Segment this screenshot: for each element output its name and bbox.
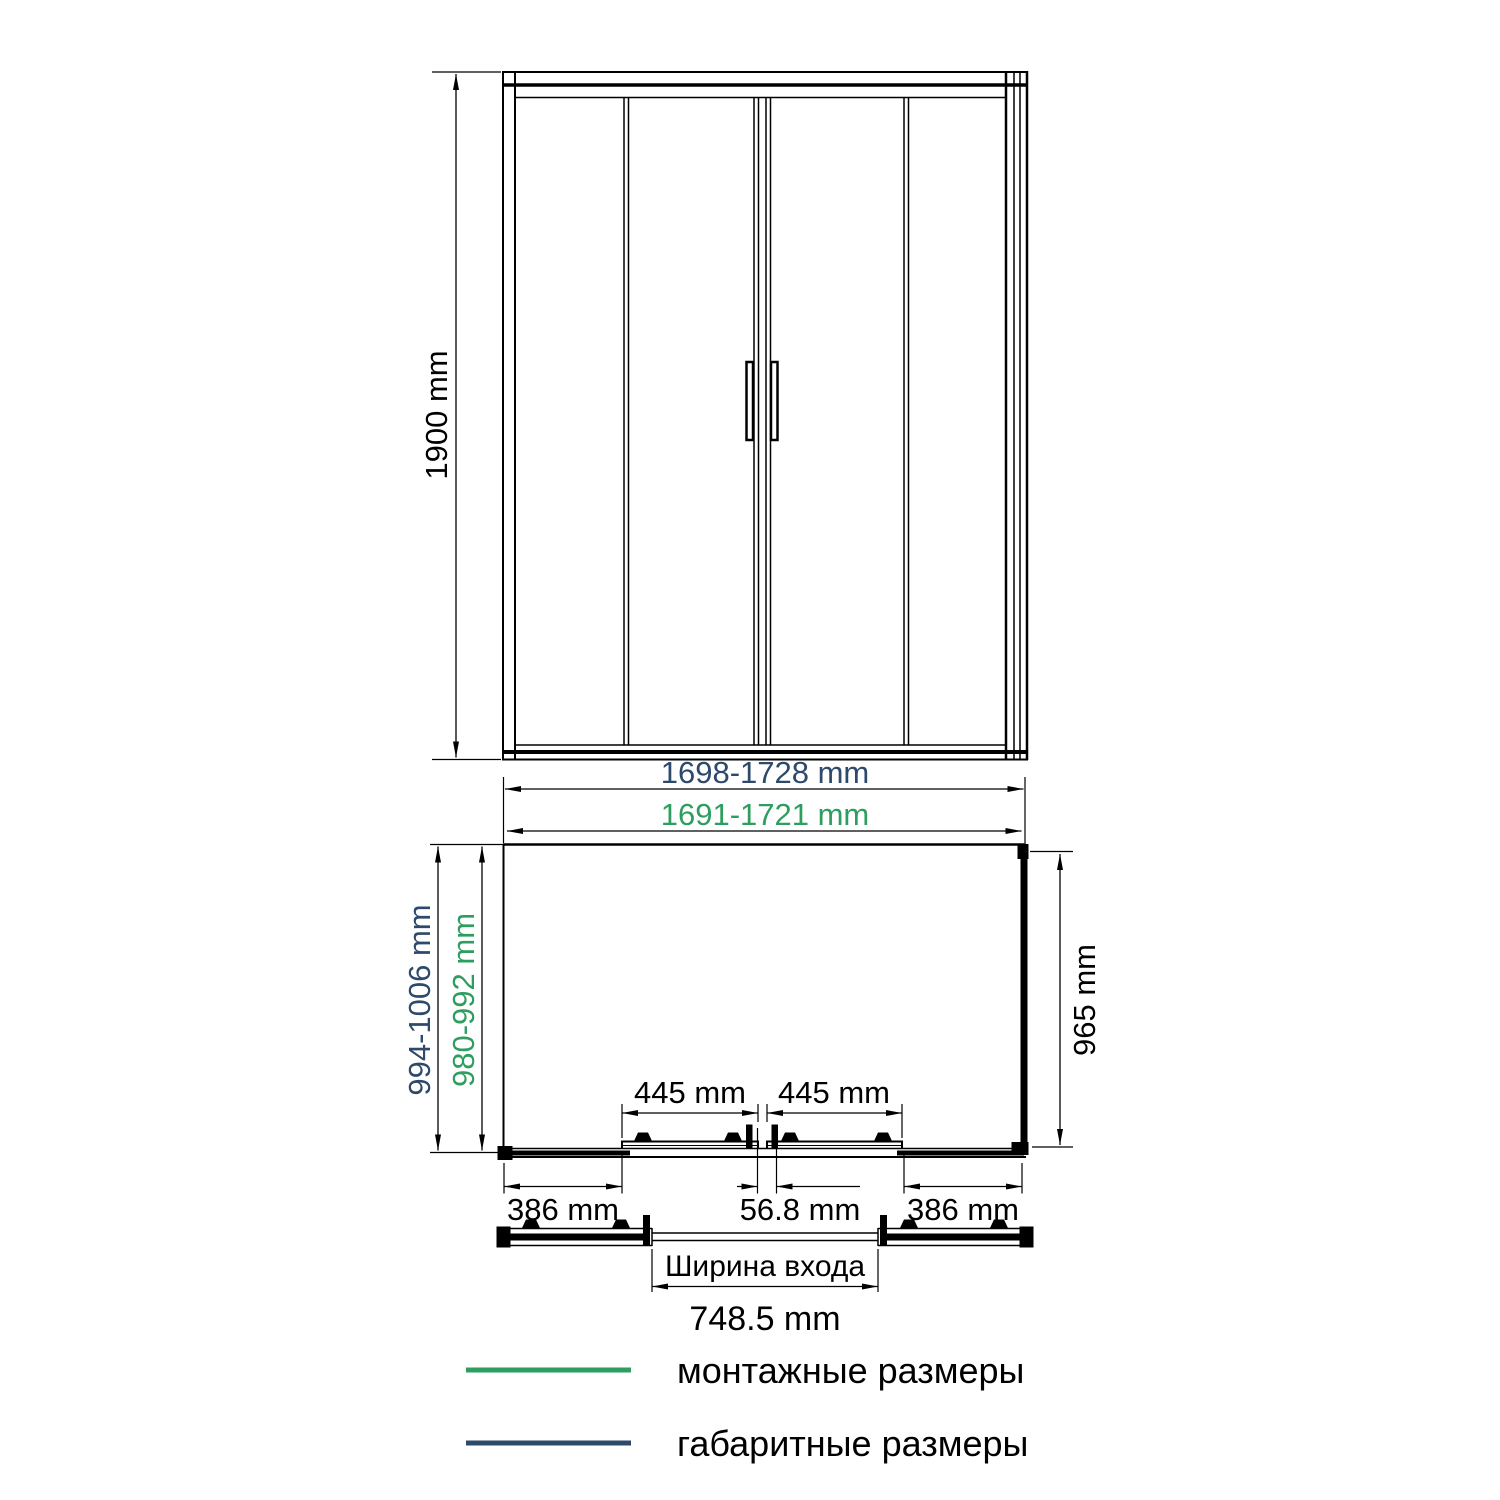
plan-sliding-door-right xyxy=(767,1125,902,1150)
entrance-width-label: 748.5 mm xyxy=(689,1300,840,1338)
roller xyxy=(634,1133,652,1142)
shower-enclosure-drawing: 1900 mm xyxy=(0,0,1500,1500)
legend-overall-label: габаритные размеры xyxy=(677,1423,1028,1464)
front-right-wall-profile xyxy=(1006,71,1027,760)
segment-left-label: 386 mm xyxy=(507,1192,619,1227)
open-handle-left xyxy=(643,1215,650,1246)
front-top-rail xyxy=(502,72,1028,98)
legend xyxy=(466,1370,631,1443)
entrance-caption: Ширина входа xyxy=(665,1250,865,1283)
overall-depth-label: 994-1006 mm xyxy=(402,904,437,1095)
door-right-label: 445 mm xyxy=(778,1075,890,1110)
plan-outline xyxy=(430,844,1029,1158)
roller xyxy=(724,1133,742,1142)
front-panel-dividers xyxy=(624,97,909,745)
mounting-width-label: 1691-1721 mm xyxy=(661,797,870,832)
roller xyxy=(874,1133,892,1142)
technical-drawing-page: 1900 mm xyxy=(0,0,1500,1500)
door-handle-right xyxy=(771,362,778,440)
door-handle-left xyxy=(747,362,754,440)
mounting-depth-label: 980-992 mm xyxy=(446,913,481,1087)
height-dimension-label: 1900 mm xyxy=(419,350,454,479)
overall-width-label: 1698-1728 mm xyxy=(661,755,870,790)
front-left-wall-profile xyxy=(503,71,515,760)
legend-mounting-label: монтажные размеры xyxy=(677,1350,1024,1391)
door-left-label: 445 mm xyxy=(634,1075,746,1110)
front-view xyxy=(432,71,1028,760)
segment-center-label: 56.8 mm xyxy=(740,1192,861,1227)
segment-right-label: 386 mm xyxy=(907,1192,1019,1227)
roller xyxy=(781,1133,799,1142)
side-depth-label: 965 mm xyxy=(1067,944,1102,1056)
segment-dimensions xyxy=(504,1128,1022,1194)
plan-bottom-track xyxy=(498,1146,1027,1160)
plan-handle-left xyxy=(746,1125,753,1149)
open-handle-right xyxy=(880,1215,887,1246)
plan-sliding-door-left xyxy=(622,1125,758,1150)
